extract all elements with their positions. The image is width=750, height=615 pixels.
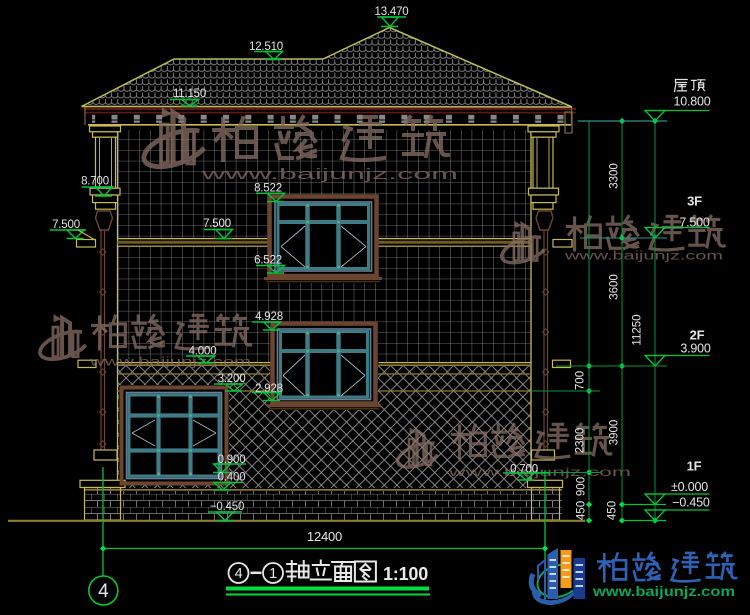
svg-text:450: 450	[576, 501, 588, 520]
svg-text:6.522: 6.522	[254, 255, 282, 267]
svg-text:www.baijunjz.com: www.baijunjz.com	[563, 251, 723, 263]
svg-text:−0.450: −0.450	[210, 501, 244, 513]
svg-text:3300: 3300	[609, 163, 621, 189]
svg-text:4: 4	[98, 581, 109, 602]
svg-text:11.150: 11.150	[173, 88, 206, 100]
svg-text:3.900: 3.900	[680, 342, 711, 356]
svg-text:3.200: 3.200	[218, 373, 246, 385]
svg-text:www.baijunjz.com: www.baijunjz.com	[88, 357, 251, 369]
svg-text:13.470: 13.470	[375, 6, 409, 18]
svg-text:11250: 11250	[632, 314, 644, 345]
svg-text:2300: 2300	[575, 428, 587, 454]
svg-text:900: 900	[576, 477, 588, 496]
svg-text:2F: 2F	[690, 328, 705, 343]
svg-text:1: 1	[269, 566, 277, 582]
svg-text:www.baijunjz.com: www.baijunjz.com	[200, 167, 458, 183]
svg-text:7.500: 7.500	[203, 218, 231, 230]
svg-text:10.800: 10.800	[673, 95, 710, 109]
svg-text:www.baijunjz.com: www.baijunjz.com	[592, 584, 735, 599]
svg-text:7.500: 7.500	[52, 219, 80, 231]
svg-text:−0.450: −0.450	[672, 496, 710, 510]
svg-text:1:100: 1:100	[383, 564, 428, 584]
svg-text:700: 700	[575, 371, 587, 390]
svg-text:±0.000: ±0.000	[671, 480, 708, 494]
svg-text:12400: 12400	[307, 529, 342, 544]
svg-text:3600: 3600	[609, 274, 621, 300]
svg-text:7.500: 7.500	[679, 216, 710, 230]
svg-text:8.700: 8.700	[81, 176, 109, 188]
svg-text:1F: 1F	[687, 459, 702, 474]
svg-text:3F: 3F	[687, 194, 702, 209]
svg-text:4: 4	[235, 566, 243, 582]
svg-text:3900: 3900	[609, 420, 621, 446]
svg-text:4.928: 4.928	[255, 311, 283, 323]
svg-text:450: 450	[607, 501, 619, 520]
